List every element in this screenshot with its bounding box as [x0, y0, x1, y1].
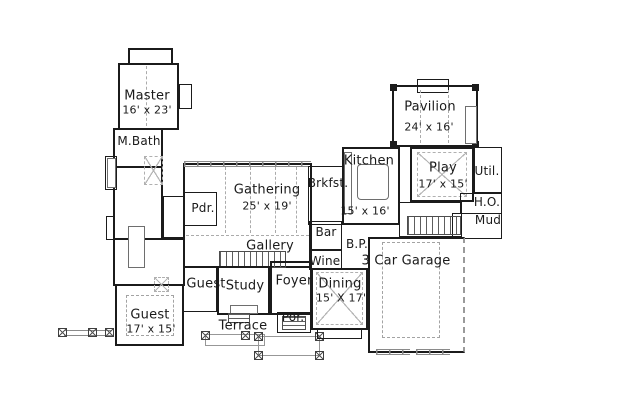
porch-post [315, 351, 324, 360]
gathering-column-dash-1 [225, 167, 226, 233]
bathtub-fixture [107, 158, 116, 188]
breakfast-outline [308, 166, 344, 225]
util-label: Util. [475, 164, 500, 178]
brkfst-label: Brkfst. [308, 176, 349, 190]
floor-plan: Master 16' x 23' M.Bath Pdr. Gathering 2… [0, 0, 620, 415]
kitchen-dims: 15' x 16' [340, 205, 389, 218]
terrace-label: Terrace [219, 319, 268, 334]
ho-label: H.O. [474, 195, 500, 209]
pdr-label: Pdr. [191, 201, 214, 215]
kitchen-table-fixture [357, 164, 389, 200]
pavilion-column [390, 84, 397, 91]
play-label: Play [429, 161, 457, 176]
pavilion-dims: 24' x 16' [404, 121, 453, 134]
guest-bedroom-label: Guest [130, 308, 169, 323]
foyer-label: Foyer [275, 274, 312, 289]
shower-fixture [144, 156, 163, 185]
pergola-post [105, 328, 114, 337]
gathering-column-dash-4 [296, 167, 297, 233]
porch-post [254, 351, 263, 360]
gallery-opening-dash [186, 235, 309, 236]
guest-hall-label: Guest [186, 277, 225, 292]
laundry-counter-fixture [128, 226, 145, 268]
master-dims: 16' x 23' [122, 104, 171, 117]
pavilion-column [472, 84, 479, 91]
garage-door-2 [416, 349, 450, 355]
left-window-bay-outline [106, 216, 115, 240]
bp-label: B.P. [346, 237, 368, 251]
pavilion-fireplace-outline [417, 79, 449, 93]
master-label: Master [124, 89, 170, 104]
gathering-window-wall [184, 161, 311, 167]
pavilion-ceiling-dash-2 [448, 90, 449, 143]
study-label: Study [226, 279, 265, 294]
mud-label: Mud [475, 213, 501, 227]
closet-strip-outline [163, 196, 185, 238]
pergola-post [88, 328, 97, 337]
kitchen-label: Kitchen [344, 154, 394, 169]
main-staircase [407, 216, 461, 235]
closet-post-fixture [154, 277, 169, 292]
gathering-dims: 25' x 19' [242, 200, 291, 213]
outdoor-grill-fixture [465, 106, 477, 144]
mbath-label: M.Bath [117, 134, 160, 148]
wine-label: Wine [310, 254, 341, 268]
guest-bedroom-dims: 17' x 15' [126, 323, 175, 336]
pergola-post [58, 328, 67, 337]
dining-bay-outline [317, 329, 362, 339]
lower-porch-deck [258, 336, 320, 356]
garage-door-1 [376, 349, 410, 355]
porch-post [201, 331, 210, 340]
gallery-label: Gallery [246, 239, 294, 254]
dining-label: Dining [318, 277, 361, 292]
gathering-label: Gathering [234, 183, 301, 198]
pavilion-ceiling-dash-1 [420, 90, 421, 143]
garage-label: 3 Car Garage [362, 254, 451, 269]
bar-label: Bar [315, 225, 336, 239]
por-label: Por. [282, 310, 305, 324]
pavilion-label: Pavilion [404, 100, 456, 115]
dining-dims: 15' X 17' [316, 292, 366, 305]
guest-hall-block-outline [113, 238, 185, 286]
play-dims: 17' x 15' [418, 178, 467, 191]
master-window-bay-outline [179, 84, 192, 109]
pavilion-column [390, 141, 397, 148]
